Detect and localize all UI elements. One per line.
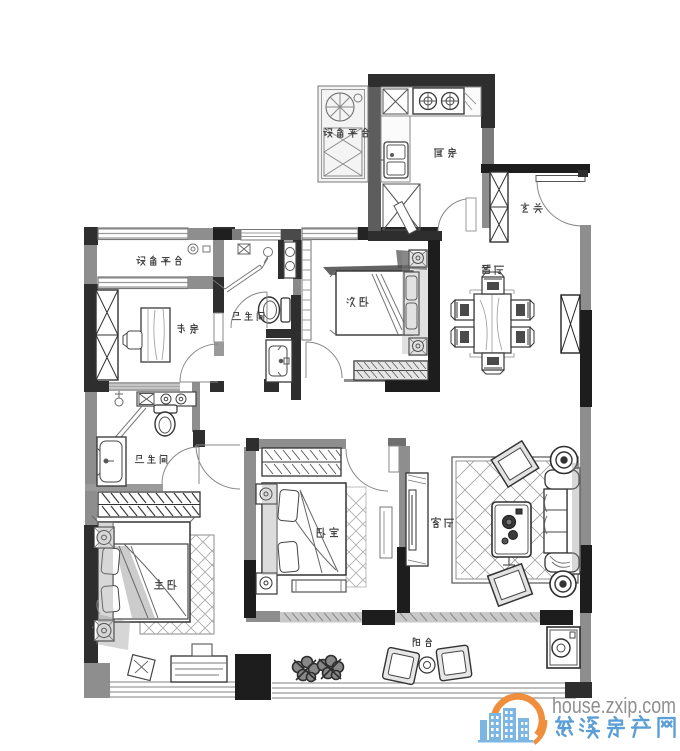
svg-text:house.zxip.com: house.zxip.com bbox=[552, 693, 676, 718]
